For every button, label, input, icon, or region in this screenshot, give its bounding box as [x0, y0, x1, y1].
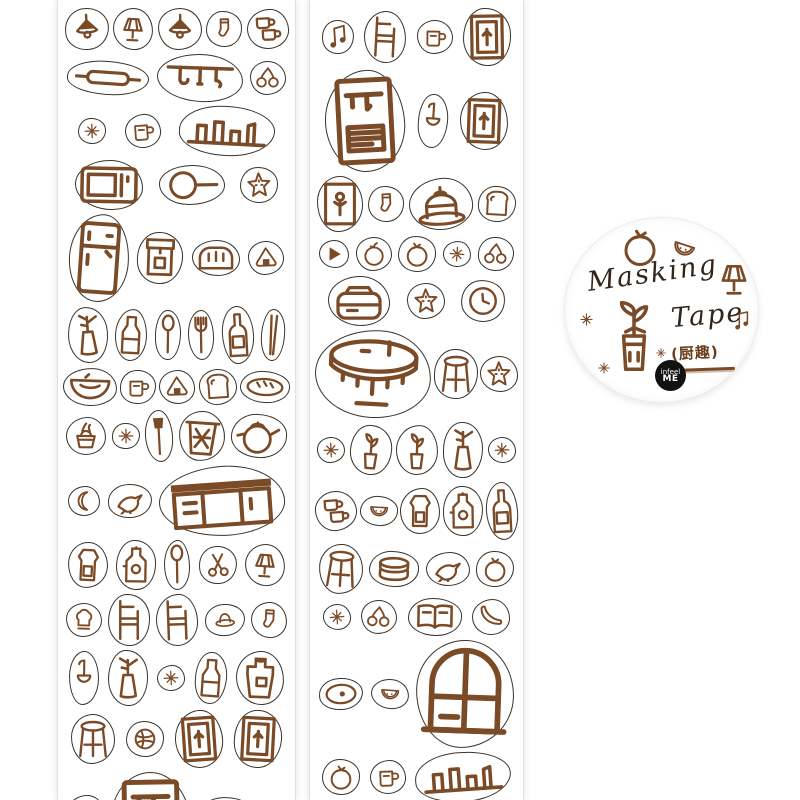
- jar-bag-sticker: [400, 488, 441, 535]
- arched-window-icon: [419, 642, 510, 745]
- mug-sticker: [369, 759, 406, 794]
- spice-shelf-sticker: [414, 749, 513, 800]
- mug-icon: [129, 117, 157, 145]
- ladle-sticker: [416, 93, 450, 149]
- onigiri-sticker: [159, 369, 196, 404]
- tape-roll-badge: Masking Tape (厨趣) infeel ME: [565, 218, 758, 402]
- flower-frame-icon: [322, 180, 358, 228]
- sparkle-sticker: [442, 240, 472, 268]
- sparkle-sticker: [111, 423, 139, 449]
- badge-subtitle: (厨趣): [670, 341, 719, 364]
- starfish-icon: [244, 170, 273, 199]
- teapot-icon: [236, 417, 283, 455]
- banana-icon: [477, 603, 505, 631]
- spice-shelf-icon: [183, 108, 271, 154]
- chair-sticker: [363, 10, 408, 64]
- logo-text-line2: ME: [662, 376, 678, 383]
- flower-bottle-icon: [448, 426, 478, 474]
- cherries-icon: [366, 603, 393, 630]
- sock-icon: [211, 15, 237, 43]
- frying-pan-sticker: [158, 164, 225, 205]
- rice-cooker-sticker: [328, 276, 390, 326]
- watermelon-icon: [375, 682, 404, 706]
- fridge-sticker: [66, 212, 132, 304]
- picture-frame-sticker: [173, 708, 225, 769]
- pendant-lamp-sticker: [63, 7, 110, 52]
- milk-bottle-icon: [119, 312, 143, 357]
- watermelon-icon: [364, 499, 393, 522]
- jar-bag-sticker: [67, 541, 109, 589]
- chef-hat-sticker: [66, 602, 103, 637]
- trash-bin-sticker: [178, 409, 227, 462]
- frying-pan-icon: [163, 169, 220, 202]
- sparkle-sticker: [316, 436, 345, 463]
- mug-sticker: [123, 113, 161, 149]
- flower-basket-icon: [71, 421, 102, 452]
- bird-sticker: [107, 483, 152, 519]
- crescent-moon-sticker: [68, 486, 100, 516]
- flower-frame-sticker: [317, 176, 363, 232]
- bird-sticker: [426, 552, 470, 586]
- wine-bottle-sticker: [485, 481, 520, 541]
- mug-icon: [421, 24, 447, 50]
- ladle-sticker: [69, 651, 100, 706]
- soup-bowl-sticker: [63, 367, 118, 407]
- stool-icon: [438, 353, 473, 396]
- utensil-rack-sticker: [156, 53, 244, 104]
- egg-plate-icon: [324, 681, 359, 707]
- yarn-ball-sticker: [125, 720, 164, 757]
- tomato-icon: [327, 763, 355, 791]
- toaster-icon: [197, 244, 235, 272]
- stool-icon: [76, 718, 110, 760]
- tall-door-sticker: [322, 68, 407, 174]
- banana-sticker: [472, 599, 511, 636]
- milk-bottle-sticker: [193, 651, 229, 705]
- sparkle-icon: [321, 441, 340, 460]
- baguette-icon: [244, 374, 285, 400]
- rolling-pin-sticker: [66, 58, 150, 98]
- flower-bottle-sticker: [66, 306, 110, 365]
- sock-sticker: [206, 11, 243, 48]
- toast-sticker: [197, 368, 237, 407]
- apple-sticker: [355, 237, 392, 272]
- scissors-icon: [203, 549, 233, 580]
- mug-sticker: [120, 370, 156, 404]
- kitchen-cabinet-sticker: [157, 462, 288, 541]
- flower-bottle-icon: [113, 654, 144, 703]
- stool-sticker: [317, 543, 364, 596]
- picture-frame-sticker: [233, 709, 284, 769]
- tall-door-sticker: [110, 771, 192, 800]
- cherries-sticker: [360, 599, 398, 635]
- jar-bag-icon: [405, 492, 436, 531]
- tomato-icon: [481, 555, 510, 584]
- picture-frame-icon: [464, 95, 504, 146]
- tomato-icon: [403, 239, 432, 268]
- chair-icon: [368, 14, 402, 60]
- sparkle-sticker: [322, 603, 352, 631]
- chair-sticker: [156, 593, 200, 646]
- music-note-sticker: [321, 19, 355, 55]
- sparkle-icon: [448, 244, 467, 263]
- egg-plate-sticker: [318, 677, 364, 711]
- watermelon-sticker: [369, 678, 409, 711]
- bird-icon: [112, 487, 147, 514]
- cherries-icon: [483, 241, 510, 268]
- teapot-sticker: [230, 413, 288, 459]
- baguette-sticker: [239, 370, 291, 405]
- picture-frame-icon: [238, 713, 279, 765]
- microwave-sticker: [75, 159, 144, 210]
- ladle-icon: [421, 97, 444, 144]
- milk-bottle-sticker: [114, 308, 149, 362]
- coffee-maker-sticker: [136, 231, 184, 285]
- microwave-icon: [80, 163, 139, 206]
- clock-sticker: [459, 279, 506, 324]
- rolling-pin-icon: [71, 63, 145, 94]
- spoon-sticker: [154, 310, 181, 360]
- spice-shelf-icon: [419, 753, 508, 800]
- wine-bottle-icon: [490, 485, 515, 536]
- picture-frame-sticker: [459, 91, 509, 151]
- stool-icon: [322, 547, 359, 591]
- scissors-sticker: [198, 545, 238, 585]
- clock-icon: [465, 283, 501, 319]
- round-table-icon: [318, 331, 428, 416]
- soup-bowl-icon: [68, 371, 113, 403]
- teacups-sticker: [313, 490, 358, 533]
- open-book-sticker: [407, 598, 462, 637]
- tall-door-icon: [327, 72, 402, 170]
- cherries-sticker: [250, 61, 286, 95]
- toast-sticker: [477, 185, 517, 223]
- apron-icon: [240, 654, 280, 701]
- rice-cooker-icon: [333, 280, 385, 322]
- fork-sticker: [188, 310, 215, 360]
- sparkle-sticker: [78, 118, 107, 145]
- sparkle-sticker: [157, 664, 186, 691]
- steamer-pot-sticker: [192, 795, 259, 800]
- steamer-pot-icon: [413, 180, 470, 228]
- sparkle-icon: [493, 441, 512, 460]
- cherries-icon: [255, 65, 281, 91]
- spatula-sticker: [144, 409, 175, 462]
- sparkle-icon: [162, 669, 181, 688]
- sparkle-icon: [117, 427, 135, 445]
- flower-bottle-sticker: [443, 422, 483, 478]
- arched-window-sticker: [414, 638, 516, 749]
- sock-sticker: [367, 185, 404, 222]
- picture-frame-icon: [178, 713, 219, 766]
- wine-bottle-icon: [226, 309, 251, 360]
- kitchen-cabinet-icon: [162, 466, 282, 536]
- hat-sticker: [204, 603, 246, 638]
- chopsticks-icon: [265, 313, 282, 358]
- sparkle-icon: [579, 312, 594, 327]
- teacups-icon: [251, 12, 285, 46]
- stool-sticker: [433, 349, 478, 400]
- bird-icon: [431, 556, 465, 582]
- fridge-icon: [71, 216, 126, 299]
- flower-bottle-icon: [71, 310, 104, 360]
- crescent-moon-icon: [73, 490, 95, 512]
- stool-sticker: [71, 714, 115, 764]
- trash-bin-icon: [183, 414, 222, 458]
- plant-cup-icon: [607, 290, 661, 382]
- toast-icon: [482, 189, 511, 218]
- sparkle-doodle-icon: [579, 312, 594, 331]
- flower-basket-sticker: [65, 417, 106, 456]
- jar-bag-icon: [72, 545, 104, 585]
- mug-icon: [374, 764, 401, 791]
- sock-icon: [373, 190, 400, 219]
- chair-icon: [113, 598, 145, 642]
- starfish-sticker: [406, 282, 445, 319]
- pendant-lamp-sticker: [157, 8, 202, 51]
- spatula-icon: [149, 414, 169, 459]
- teacups-sticker: [245, 8, 289, 50]
- play-triangle-sticker: [319, 240, 349, 269]
- picture-frame-sticker: [462, 8, 511, 67]
- coffee-maker-icon: [141, 235, 179, 280]
- spoon-sticker: [164, 540, 191, 590]
- open-book-icon: [413, 602, 458, 633]
- starfish-sticker: [239, 166, 279, 204]
- round-table-sticker: [313, 327, 433, 421]
- potted-plant-sticker: [396, 424, 440, 475]
- chef-hat-icon: [71, 607, 98, 634]
- spice-shelf-sticker: [178, 104, 276, 159]
- music-note-doodle-icon: [733, 310, 751, 336]
- yarn-ball-icon: [131, 725, 160, 754]
- mug-sticker: [416, 20, 453, 55]
- toast-icon: [203, 372, 233, 402]
- starfish-icon: [411, 287, 440, 316]
- apron-sticker: [235, 650, 285, 706]
- tomato-sticker: [476, 550, 515, 587]
- starfish-sticker: [480, 356, 519, 393]
- sparkle-icon: [83, 122, 102, 141]
- spoon-icon: [169, 544, 186, 586]
- table-lamp-icon: [117, 11, 149, 47]
- chopsticks-sticker: [260, 308, 288, 362]
- music-note-icon: [326, 23, 350, 50]
- pendant-lamp-icon: [68, 11, 104, 47]
- chair-icon: [161, 597, 195, 642]
- table-lamp-sticker: [112, 7, 154, 51]
- onigiri-sticker: [248, 240, 285, 275]
- oil-pitcher-icon: [121, 544, 152, 587]
- tape-strip-left: [57, 0, 296, 800]
- plant-in-cup-doodle-icon: [607, 290, 661, 386]
- pancake-stack-icon: [374, 554, 415, 583]
- toaster-sticker: [192, 240, 240, 276]
- tomato-sticker: [322, 759, 360, 795]
- pancake-stack-sticker: [369, 550, 420, 588]
- tomato-sticker: [398, 235, 438, 273]
- wine-bottle-sticker: [220, 305, 255, 365]
- steamer-pot-sticker: [407, 176, 474, 232]
- milk-bottle-icon: [198, 655, 223, 700]
- table-lamp-sticker: [243, 543, 286, 588]
- chair-sticker: [108, 594, 150, 646]
- flower-bottle-sticker: [108, 650, 149, 707]
- table-lamp-icon: [715, 258, 753, 300]
- onigiri-icon: [253, 245, 280, 272]
- starfish-icon: [485, 360, 513, 388]
- table-lamp-icon: [249, 547, 281, 583]
- sparkle-sticker: [488, 437, 517, 464]
- apple-icon: [360, 241, 386, 267]
- watermelon-sticker: [359, 495, 399, 527]
- onigiri-icon: [164, 374, 191, 401]
- utensil-rack-icon: [161, 57, 238, 100]
- sparkle-icon: [327, 607, 346, 626]
- sock-sticker: [250, 601, 288, 639]
- oil-pitcher-sticker: [116, 540, 157, 591]
- cherries-sticker: [478, 236, 515, 271]
- fork-icon: [193, 314, 210, 356]
- teacups-icon: [319, 494, 353, 528]
- mug-icon: [125, 374, 151, 400]
- music-note-icon: [733, 310, 751, 332]
- spoon-icon: [159, 314, 176, 356]
- potted-plant-icon: [353, 428, 388, 472]
- pendant-lamp-icon: [162, 12, 197, 47]
- sock-icon: [255, 605, 282, 634]
- oil-pitcher-sticker: [443, 486, 484, 537]
- potted-plant-icon: [401, 428, 434, 471]
- play-triangle-icon: [324, 244, 344, 264]
- picture-frame-icon: [467, 12, 506, 63]
- ladle-icon: [74, 655, 95, 701]
- potted-plant-sticker: [348, 424, 393, 477]
- tall-door-icon: [115, 775, 187, 800]
- oil-pitcher-icon: [448, 490, 479, 533]
- flower-frame-sticker: [62, 795, 109, 800]
- tape-strip-right: [309, 0, 524, 800]
- infeel-me-logo: infeel ME: [655, 360, 686, 391]
- hat-icon: [209, 607, 241, 633]
